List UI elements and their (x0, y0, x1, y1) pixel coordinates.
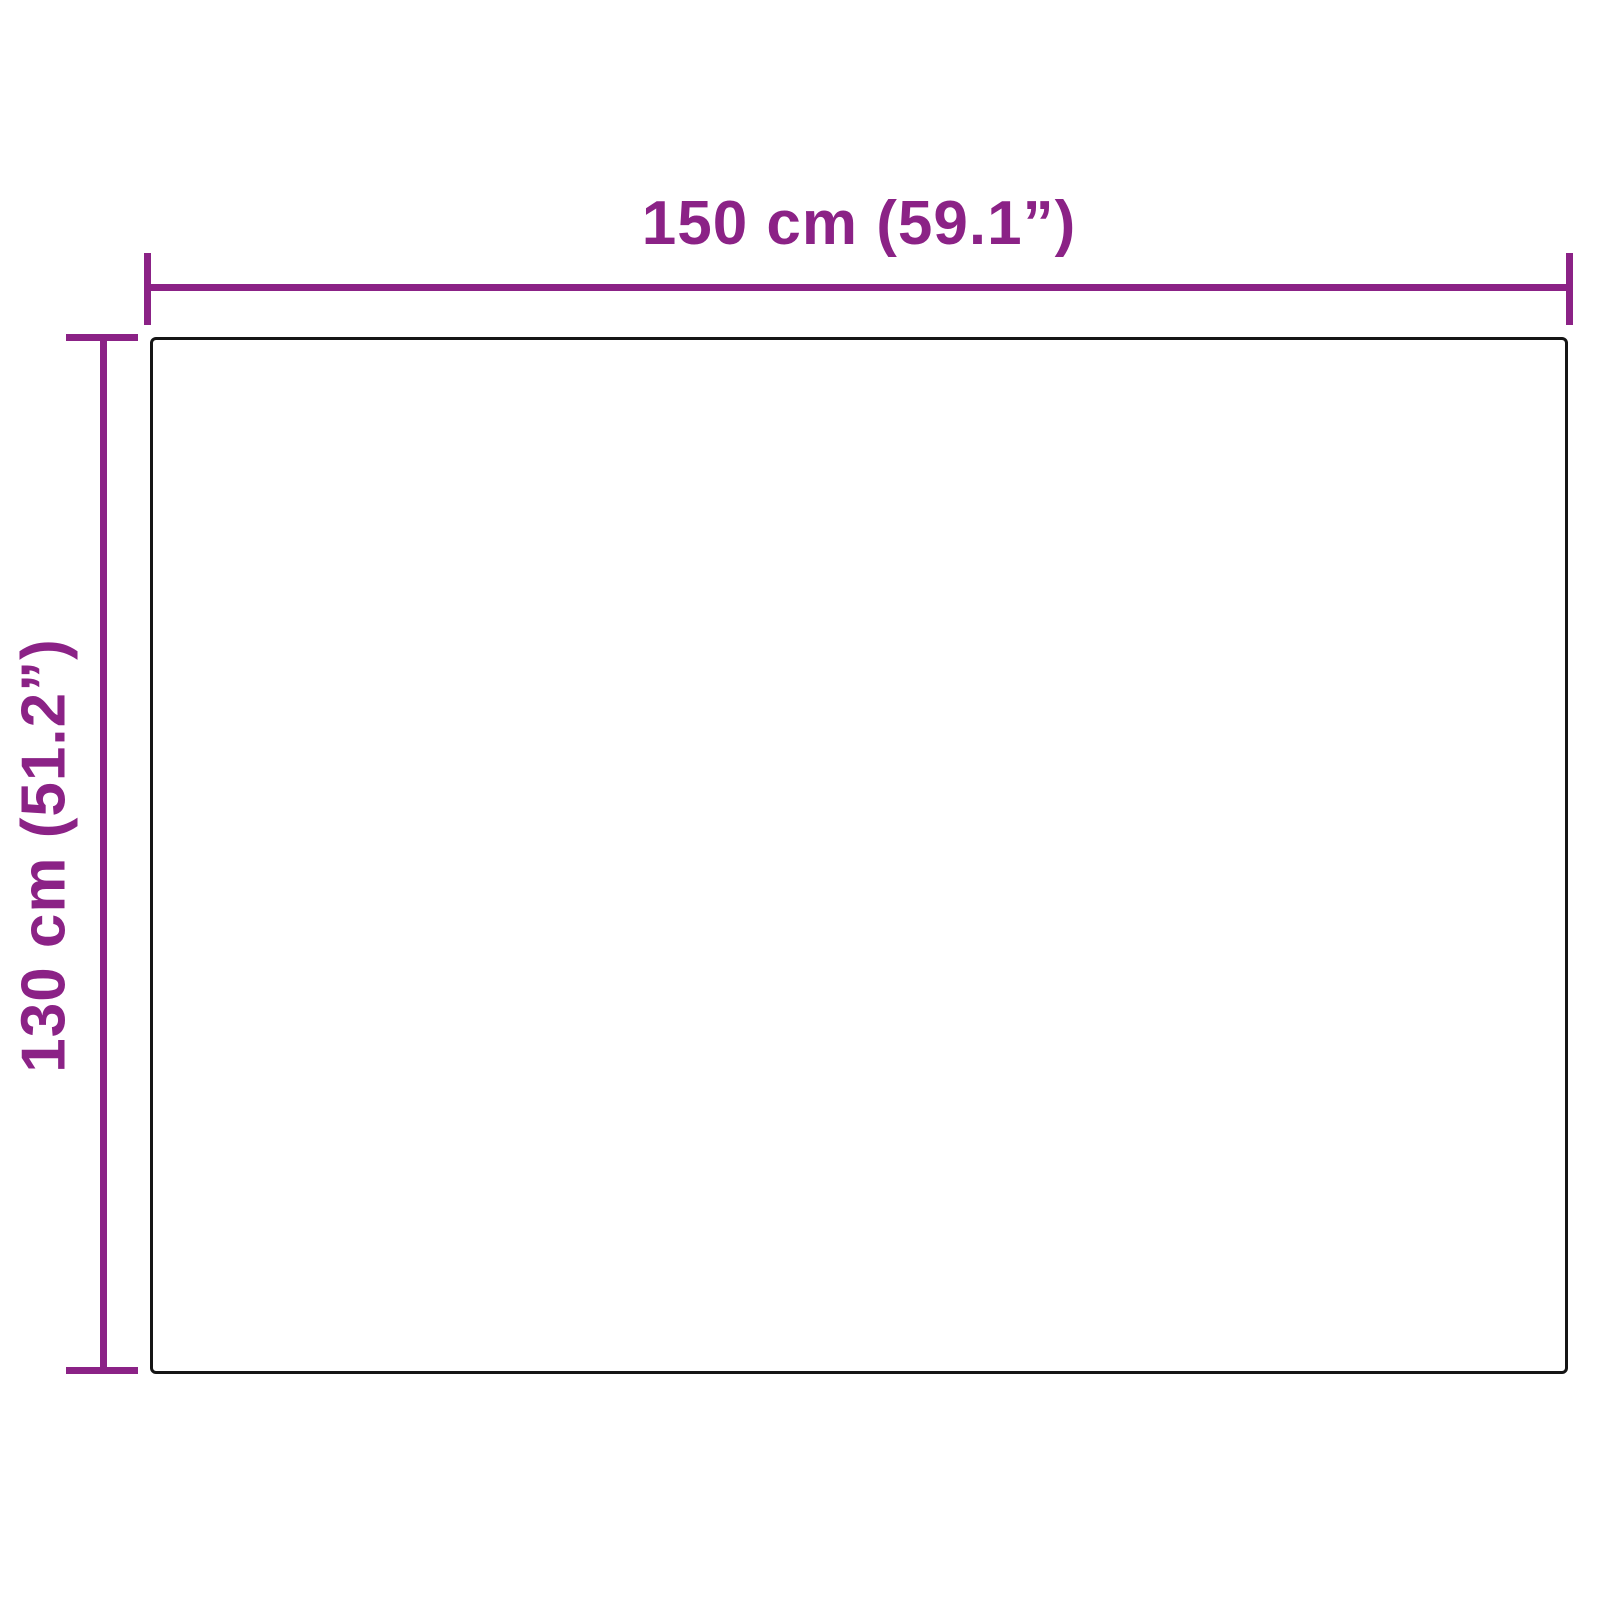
width-dimension-line (148, 284, 1570, 291)
width-dimension-label: 150 cm (59.1”) (642, 188, 1076, 259)
width-dimension-label-wrap: 150 cm (59.1”) (148, 188, 1570, 274)
height-dimension-label: 130 cm (51.2”) (9, 638, 80, 1072)
height-dimension-label-wrap: 130 cm (51.2”) (0, 337, 88, 1374)
product-outline-rectangle (150, 337, 1568, 1374)
height-dimension-end-tick-bottom (66, 1367, 138, 1374)
height-dimension-end-tick-top (66, 334, 138, 341)
height-dimension-line (100, 337, 107, 1374)
width-dimension-end-tick-right (1566, 253, 1573, 325)
dimension-diagram: 150 cm (59.1”) 130 cm (51.2”) (0, 0, 1600, 1600)
width-dimension-end-tick-left (144, 253, 151, 325)
